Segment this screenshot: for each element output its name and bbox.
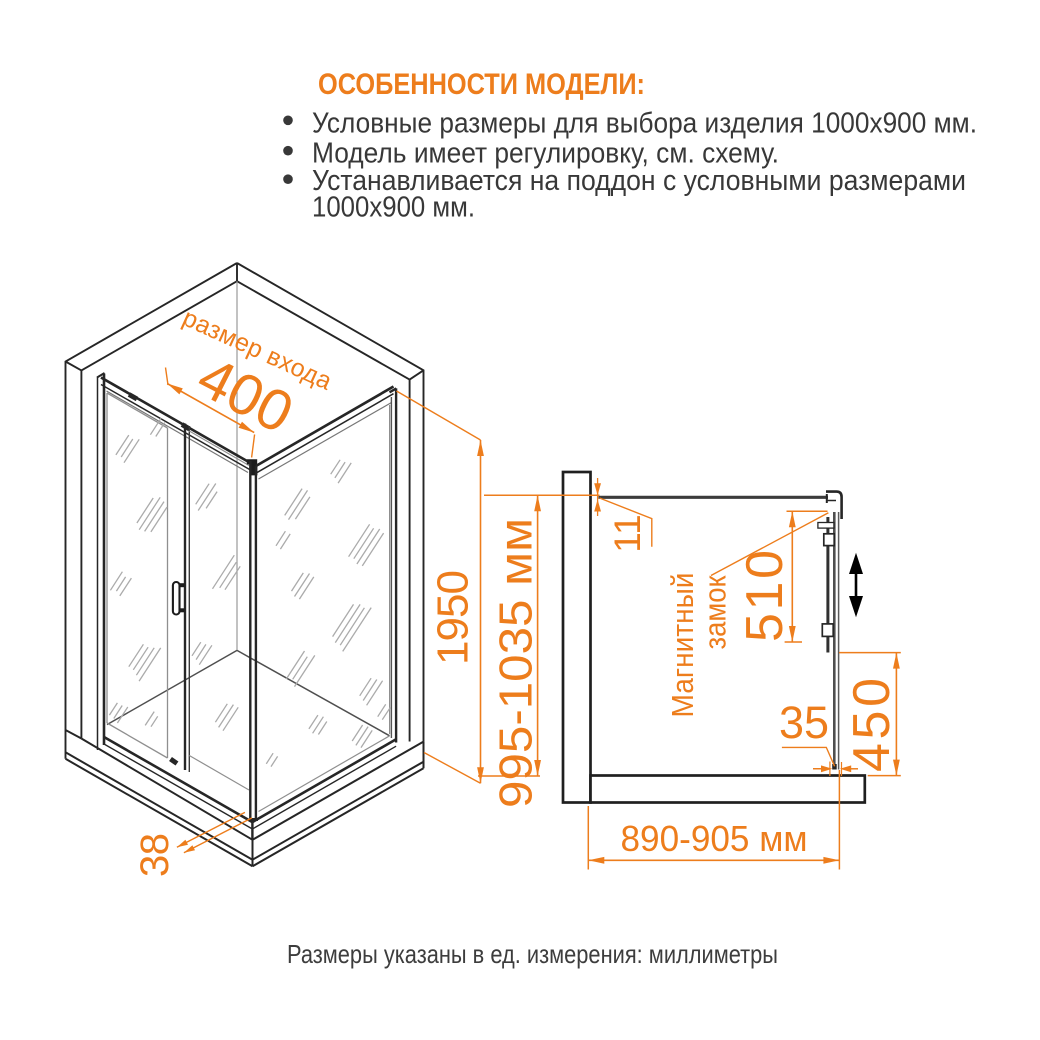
svg-text:450: 450 [843, 678, 901, 772]
svg-text:ОСОБЕННОСТИ МОДЕЛИ:: ОСОБЕННОСТИ МОДЕЛИ: [318, 68, 645, 101]
svg-text:Условные размеры для выбора из: Условные размеры для выбора изделия 1000… [312, 108, 977, 140]
svg-text:995-1035 мм: 995-1035 мм [490, 518, 542, 808]
svg-text:11: 11 [607, 514, 648, 552]
svg-text:Размеры указаны в ед. измерени: Размеры указаны в ед. измерения: миллиме… [287, 939, 778, 969]
svg-text:35: 35 [779, 697, 829, 748]
svg-text:510: 510 [736, 550, 794, 642]
svg-text:38: 38 [133, 833, 177, 877]
svg-text:1950: 1950 [429, 570, 478, 665]
svg-text:Магнитный: Магнитный [665, 573, 700, 718]
svg-text:1000х900 мм.: 1000х900 мм. [312, 192, 475, 224]
svg-text:890-905 мм: 890-905 мм [621, 818, 808, 859]
svg-text:замок: замок [698, 575, 733, 649]
